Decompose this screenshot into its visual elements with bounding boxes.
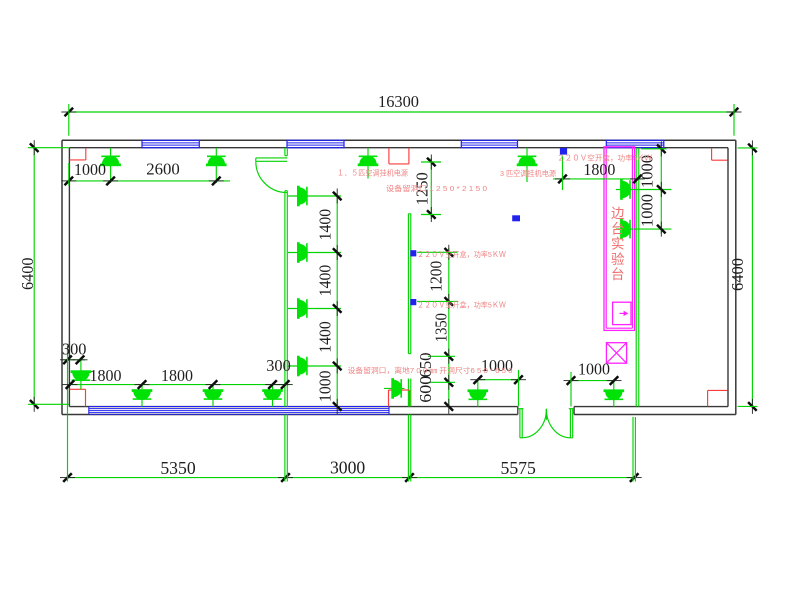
svg-text:设备留洞口，离地7 0 0 ㎜ 开洞尺寸6 5 0 * 6: 设备留洞口，离地7 0 0 ㎜ 开洞尺寸6 5 0 * 6 5 0 [348,365,513,375]
svg-text:6400: 6400 [728,258,747,291]
svg-text:台: 台 [611,221,625,236]
svg-text:1800: 1800 [583,160,615,179]
svg-text:1000: 1000 [74,160,106,179]
svg-text:实: 实 [611,237,625,252]
svg-text:1800: 1800 [90,366,122,385]
svg-text:1400: 1400 [315,209,334,241]
svg-text:1400: 1400 [315,321,334,353]
svg-text:300: 300 [266,356,291,375]
svg-text:２２０Ｖ空开盒，功率5ＫＷ: ２２０Ｖ空开盒，功率5ＫＷ [557,152,652,162]
svg-text:1200: 1200 [427,261,446,292]
svg-text:600: 600 [416,376,435,403]
svg-text:设备留洞口 1 2 5 0 * 2 1 5 0: 设备留洞口 1 2 5 0 * 2 1 5 0 [386,183,487,193]
svg-text:5575: 5575 [501,458,536,478]
svg-text:2600: 2600 [146,160,180,179]
svg-text:1000: 1000 [578,360,610,379]
svg-text:3000: 3000 [330,458,365,478]
svg-text:２２０Ｖ空开盒，功率5ＫＷ: ２２０Ｖ空开盒，功率5ＫＷ [417,249,506,259]
svg-text:1000: 1000 [315,370,334,402]
svg-text:1000: 1000 [638,194,657,227]
svg-text:16300: 16300 [378,92,419,111]
svg-text:300: 300 [62,339,87,358]
svg-text:１．５匹空调挂机电源: １．５匹空调挂机电源 [337,167,408,177]
svg-text:3 匹空调挂机电源: 3 匹空调挂机电源 [500,168,556,178]
svg-text:5350: 5350 [160,458,195,478]
svg-text:1350: 1350 [432,313,451,342]
svg-text:1400: 1400 [315,265,334,297]
svg-text:验: 验 [611,252,625,267]
svg-text:边: 边 [611,206,625,221]
svg-text:1800: 1800 [161,366,193,385]
svg-text:6400: 6400 [18,258,37,291]
svg-text:２２０Ｖ空开盒，功率5ＫＷ: ２２０Ｖ空开盒，功率5ＫＷ [417,300,506,310]
svg-text:台: 台 [611,267,625,282]
